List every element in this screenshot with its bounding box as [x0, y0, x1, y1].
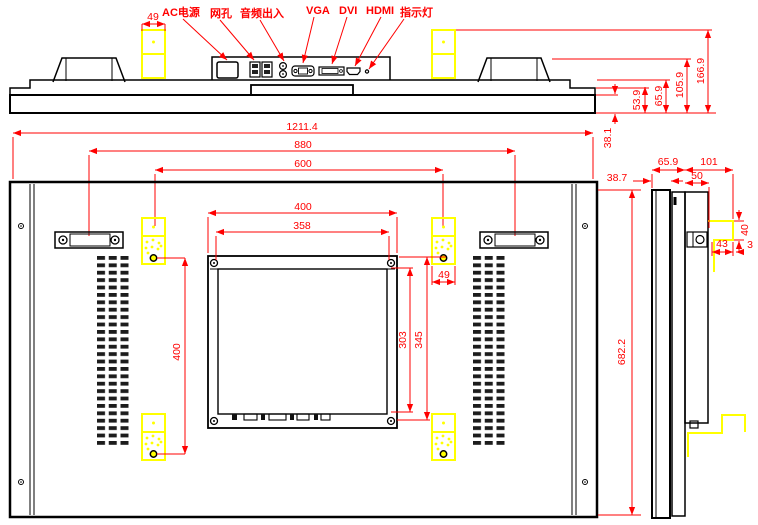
mount-bracket-bottom-left: [142, 414, 165, 460]
bracket-hole: [440, 255, 446, 261]
top-handle-left: [53, 58, 125, 82]
dim-38-7: 38.7: [607, 172, 628, 184]
leader-led: [369, 19, 404, 69]
wall-bracket-top-left: [142, 30, 165, 78]
back-handle-right: [480, 232, 548, 248]
dim-303: 303: [397, 331, 409, 349]
leader-ac: [183, 19, 227, 60]
hdmi-port: [347, 68, 360, 75]
dim-49-back: 49: [438, 269, 450, 281]
side-mount-ear: [687, 232, 707, 247]
leader-hdmi: [355, 17, 381, 66]
dim-40: 40: [739, 224, 751, 236]
mount-bracket-bottom-right: [432, 414, 455, 460]
dim-65-9-side: 65.9: [658, 156, 679, 168]
dim-1211-4: 1211.4: [286, 121, 317, 133]
bracket-hole: [150, 255, 156, 261]
led-indicator: [365, 70, 368, 73]
dim-43: 43: [716, 238, 728, 250]
dim-105-9: 105.9: [674, 72, 686, 98]
mount-bracket-top-left: [142, 218, 165, 264]
dim-101: 101: [700, 156, 718, 168]
front-bezel-bar: [10, 95, 595, 113]
monitor-dimension-drawing: AC电源 网孔 音频出入 VGA DVI HDMI 指示灯 49 38.1 53…: [0, 0, 758, 525]
dvi-port: [319, 67, 344, 75]
dim-682-2: 682.2: [616, 339, 628, 365]
dim-53-9: 53.9: [631, 90, 643, 111]
vga-port: [292, 66, 314, 76]
side-module: [685, 192, 708, 423]
side-bottom-notch: [690, 421, 698, 428]
dim-358: 358: [293, 220, 311, 232]
vent-grille-right: [473, 256, 508, 448]
back-view-dimensions: 400 358 303 345 400 49 682.2: [157, 190, 641, 515]
dim-65-9-top: 65.9: [653, 86, 665, 107]
dim-166-9: 166.9: [695, 58, 707, 84]
side-rear-slab: [672, 192, 685, 516]
side-panel-slab: [652, 190, 670, 518]
side-detail-mark: [674, 197, 677, 205]
back-handle-left: [55, 232, 123, 248]
label-dvi: DVI: [339, 5, 357, 17]
lan-ports: [250, 62, 272, 77]
wall-bracket-top-right: [432, 30, 455, 78]
dim-400-pitch: 400: [171, 343, 183, 361]
plate-connectors: [232, 414, 330, 420]
dim-345: 345: [413, 331, 425, 349]
dim-38-1: 38.1: [602, 128, 614, 149]
dim-49-top: 49: [147, 11, 159, 23]
center-protrusion: [251, 85, 353, 95]
label-vga: VGA: [306, 5, 330, 17]
io-ports: [217, 62, 369, 78]
side-view: [652, 190, 745, 518]
leader-vga: [303, 17, 314, 63]
label-led: 指示灯: [400, 5, 433, 19]
dim-880: 880: [294, 139, 312, 151]
dim-3: 3: [747, 239, 753, 251]
leader-audio: [260, 20, 284, 61]
bracket-hole: [150, 451, 156, 457]
top-handle-right: [478, 58, 550, 82]
label-audio: 音频出入: [240, 6, 284, 20]
bracket-hole: [440, 451, 446, 457]
dim-600: 600: [294, 158, 312, 170]
drawing-canvas: AC电源 网孔 音频出入 VGA DVI HDMI 指示灯 49 38.1 53…: [0, 0, 758, 525]
label-lan: 网孔: [210, 7, 232, 20]
dim-50: 50: [691, 170, 703, 182]
ac-power-inlet: [217, 62, 238, 78]
label-hdmi: HDMI: [366, 5, 394, 17]
label-ac: AC电源: [162, 5, 200, 19]
vent-grille-left: [97, 256, 132, 448]
audio-jacks: [280, 63, 287, 78]
dim-400-vesa-w: 400: [294, 201, 312, 213]
top-view: [10, 30, 595, 113]
vesa-plate: [208, 256, 397, 428]
top-housing-bar: [10, 80, 595, 95]
leader-lan: [220, 20, 254, 60]
port-labels: AC电源 网孔 音频出入 VGA DVI HDMI 指示灯: [162, 5, 433, 69]
width-dimensions: 1211.4 880 600: [13, 121, 593, 236]
